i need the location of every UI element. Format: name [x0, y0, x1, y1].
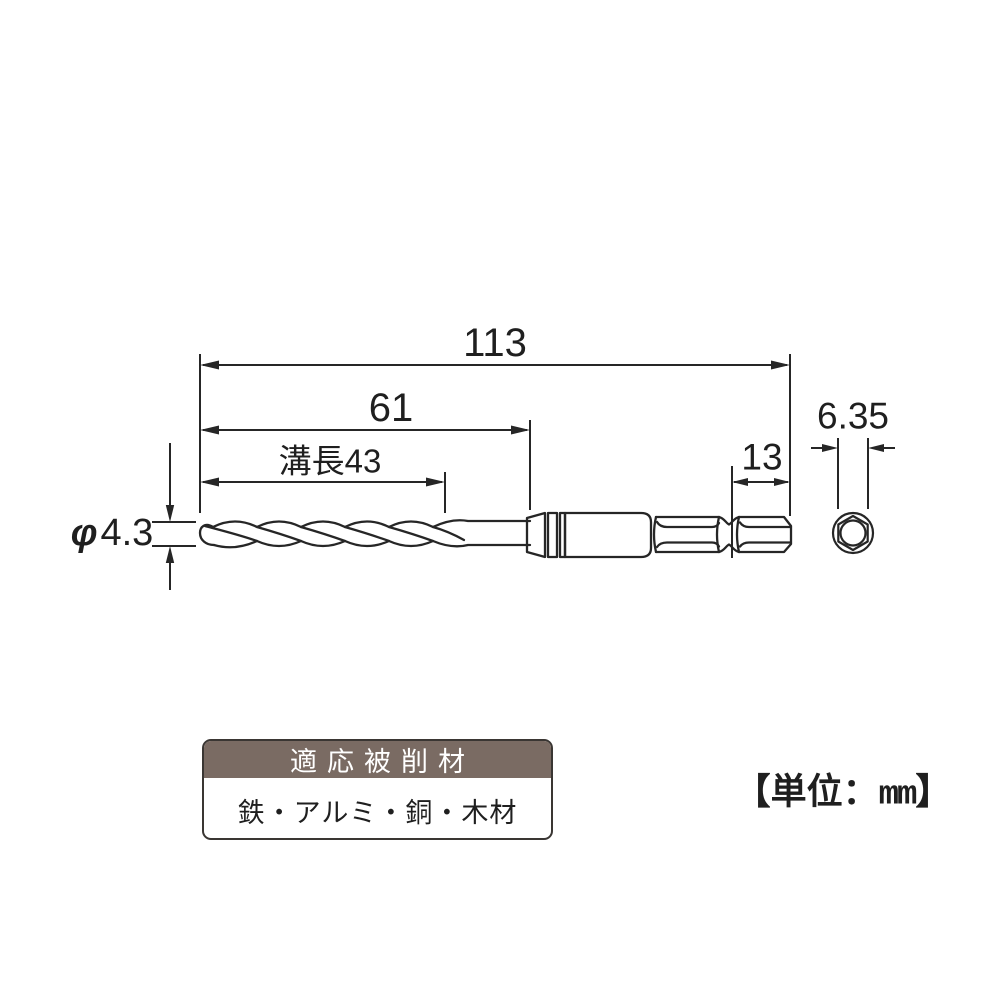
dimension-label-overall-length: 113: [463, 323, 527, 363]
arrowhead: [200, 478, 219, 487]
dimension-label-hex-end-length: 13: [741, 439, 782, 476]
neck-bottom: [719, 545, 739, 553]
bit-holder-sleeve: [527, 513, 651, 557]
hex-flat-line: [740, 543, 790, 547]
drill-bit-technical-drawing: [0, 0, 1001, 1001]
flute-helix-line: [345, 527, 389, 541]
arrowhead: [426, 478, 445, 487]
arrowhead: [868, 444, 884, 452]
arrowhead: [200, 426, 219, 435]
unit-note-suffix: 】: [915, 771, 951, 812]
hex-cap-curve: [717, 517, 719, 552]
flute-helix-line: [433, 527, 464, 540]
materials-table: 適応被削材 鉄・アルミ・銅・木材: [202, 739, 553, 840]
flute-helix-line: [389, 527, 433, 541]
arrowhead: [771, 361, 790, 370]
sleeve-taper-collar: [527, 513, 545, 557]
sleeve-body: [565, 513, 651, 557]
diameter-value: 4.3: [100, 512, 153, 554]
unit-note-prefix: 【単位：: [735, 771, 879, 812]
flute-helix-line: [205, 526, 257, 541]
arrowhead: [774, 478, 790, 486]
hex-flat-line: [657, 543, 719, 548]
flute-section: [205, 520, 530, 547]
hex-shank-front-section: [654, 517, 719, 552]
arrowhead: [511, 426, 530, 435]
arrowhead: [822, 444, 838, 452]
technical-diagram-page: 113 61 溝長43 13 6.35 φ4.3 適応被削材 鉄・アルミ・銅・木…: [0, 0, 1001, 1001]
flute-bottom-edge: [214, 541, 530, 547]
dimension-label-flute-length: 溝長43: [279, 445, 382, 478]
phi-symbol: φ: [71, 512, 98, 554]
dimension-label-diameter: φ4.3: [71, 514, 154, 552]
arrowhead: [200, 361, 219, 370]
unit-note-mm: mm: [879, 777, 916, 815]
hex-flat-line: [657, 522, 719, 527]
arrowhead: [732, 478, 748, 486]
dimension-lines: [152, 361, 895, 591]
flute-helix-line: [257, 527, 301, 541]
hex-cap-curve: [654, 517, 656, 552]
unit-note: 【単位：mm】: [735, 774, 952, 813]
flute-top-edge: [213, 520, 530, 527]
materials-table-body: 鉄・アルミ・銅・木材: [204, 781, 551, 839]
arrowhead: [166, 505, 174, 522]
dimension-label-tip-to-sleeve: 61: [369, 388, 414, 428]
hex-flat-line: [740, 523, 790, 528]
hex-cap-curve: [737, 517, 739, 552]
dimension-label-hex-width: 6.35: [817, 398, 889, 435]
materials-table-header: 適応被削材: [204, 741, 551, 781]
hex-shank-end-section: [737, 517, 791, 552]
drill-bit-side-view: [200, 513, 791, 557]
arrowhead: [166, 546, 174, 563]
hex-shank-cross-section: [833, 513, 873, 553]
cross-section-inner-circle: [841, 521, 866, 546]
sleeve-ring-1: [548, 513, 557, 557]
flute-helix-line: [301, 527, 345, 541]
hex-end-outline: [739, 517, 791, 552]
neck-top: [719, 517, 739, 525]
